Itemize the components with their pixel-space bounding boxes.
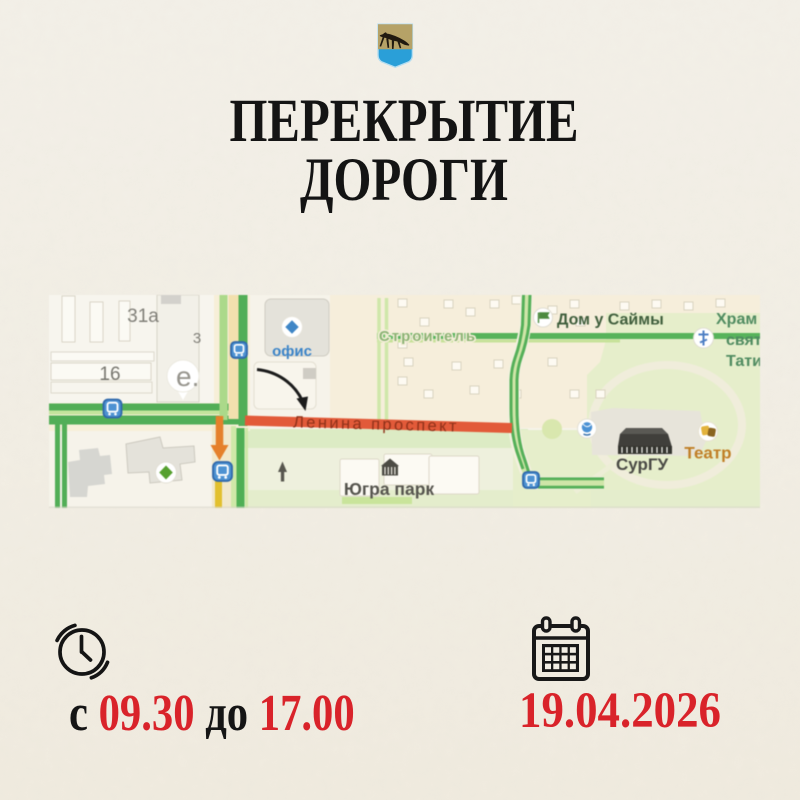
svg-text:16: 16 [99,364,120,385]
svg-text:Татиа: Татиа [726,353,760,370]
svg-text:Театр: Театр [684,444,731,463]
svg-text:Храм: Храм [716,311,757,328]
svg-text:Югра парк: Югра парк [344,479,435,499]
svg-text:3: 3 [193,330,201,347]
svg-text:31а: 31а [127,306,159,327]
svg-text:СурГУ: СурГУ [616,455,669,474]
svg-text:свято: свято [726,332,760,349]
svg-text:офис: офис [272,343,312,360]
svg-text:е.: е. [176,361,199,392]
svg-text:Строитель: Строитель [379,328,477,345]
svg-text:Дом у Саймы: Дом у Саймы [557,312,664,329]
